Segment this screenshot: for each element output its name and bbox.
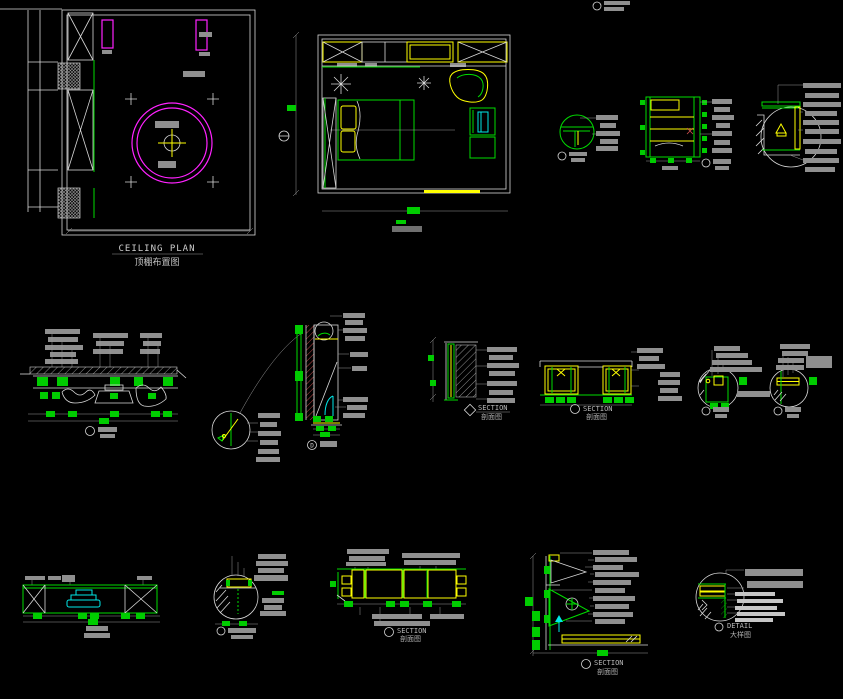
section-title-en: SECTION bbox=[478, 404, 508, 412]
wall-hatch bbox=[456, 345, 476, 397]
stud-hatch bbox=[721, 598, 727, 618]
ceiling-plan: CEILING PLAN 顶棚布置图 bbox=[0, 9, 255, 268]
callout-letter-d: D bbox=[310, 443, 314, 450]
detail-b-callout-icon bbox=[702, 159, 710, 167]
section-b4-wardrobe: SECTION 剖面图 bbox=[525, 550, 648, 676]
detail-b5-callout-icon bbox=[715, 623, 723, 631]
detail-m6 bbox=[770, 344, 832, 418]
elevation-callout-icon bbox=[279, 131, 289, 141]
section-title-cn: 剖面图 bbox=[597, 667, 618, 676]
detail-m5-callout-icon bbox=[702, 407, 710, 415]
ceiling-plan-title-en: CEILING PLAN bbox=[118, 244, 195, 254]
section-m1-callout-icon bbox=[86, 427, 95, 436]
section-m4-callout-icon bbox=[571, 405, 580, 414]
detail-a-callout-icon bbox=[558, 152, 566, 160]
section-b3-cabinet: SECTION 剖面图 bbox=[330, 549, 466, 643]
lamp-icon bbox=[776, 124, 786, 133]
detail-a bbox=[558, 115, 620, 162]
section-title-en: SECTION bbox=[583, 405, 613, 413]
detail-title-cn: 大样图 bbox=[730, 630, 751, 639]
leader-curve bbox=[240, 333, 302, 413]
detail-c-lamp-niche bbox=[756, 83, 841, 172]
detail-b2 bbox=[214, 554, 288, 639]
floor-plan bbox=[279, 32, 510, 232]
hatched-block bbox=[58, 63, 80, 89]
wall-hatch bbox=[306, 325, 314, 420]
cad-drawing-canvas: CEILING PLAN 顶棚布置图 bbox=[0, 0, 843, 699]
detail-m6-callout-icon bbox=[774, 407, 782, 415]
section-m3: SECTION 剖面图 bbox=[428, 337, 519, 421]
section-b3-callout-icon bbox=[385, 628, 394, 637]
section-b4-callout-icon bbox=[582, 660, 591, 669]
wardrobe-band bbox=[322, 42, 507, 67]
ceiling-circle-fixture bbox=[132, 103, 212, 183]
side-wardrobe bbox=[323, 98, 336, 188]
section-m3-callout-icon bbox=[464, 404, 475, 415]
section-ceiling-cove bbox=[20, 329, 186, 438]
section-title-cn: 剖面图 bbox=[481, 412, 502, 421]
light-fixture bbox=[102, 20, 212, 56]
section-title-cn: 剖面图 bbox=[586, 412, 607, 421]
section-title-en: SECTION bbox=[397, 627, 427, 635]
plant-symbol bbox=[331, 74, 431, 94]
desk-with-monitor bbox=[470, 108, 495, 158]
section-wall-tall: D bbox=[212, 313, 368, 462]
ceiling-plan-title-cn: 顶棚布置图 bbox=[134, 256, 179, 268]
detail-m5 bbox=[698, 346, 770, 418]
section-title-en: SECTION bbox=[594, 659, 624, 667]
cad-linework: CEILING PLAN 顶棚布置图 bbox=[0, 0, 843, 699]
section-m4: SECTION 剖面图 bbox=[540, 348, 682, 421]
sheet-callout bbox=[593, 1, 630, 11]
armchair bbox=[450, 70, 488, 103]
detail-title-en: DETAIL bbox=[727, 622, 752, 630]
detail-b2-callout-icon bbox=[217, 627, 225, 635]
hatched-block bbox=[58, 188, 80, 218]
ceiling-slab-hatch bbox=[30, 367, 177, 374]
detail-b-shelf-section bbox=[640, 97, 734, 170]
section-title-cn: 剖面图 bbox=[400, 634, 421, 643]
bed bbox=[330, 100, 455, 160]
tv-object bbox=[67, 590, 100, 607]
elevation-tv-cabinet bbox=[23, 575, 160, 638]
column-xbox bbox=[68, 13, 93, 170]
detail-b5: DETAIL 大样图 bbox=[696, 569, 803, 639]
